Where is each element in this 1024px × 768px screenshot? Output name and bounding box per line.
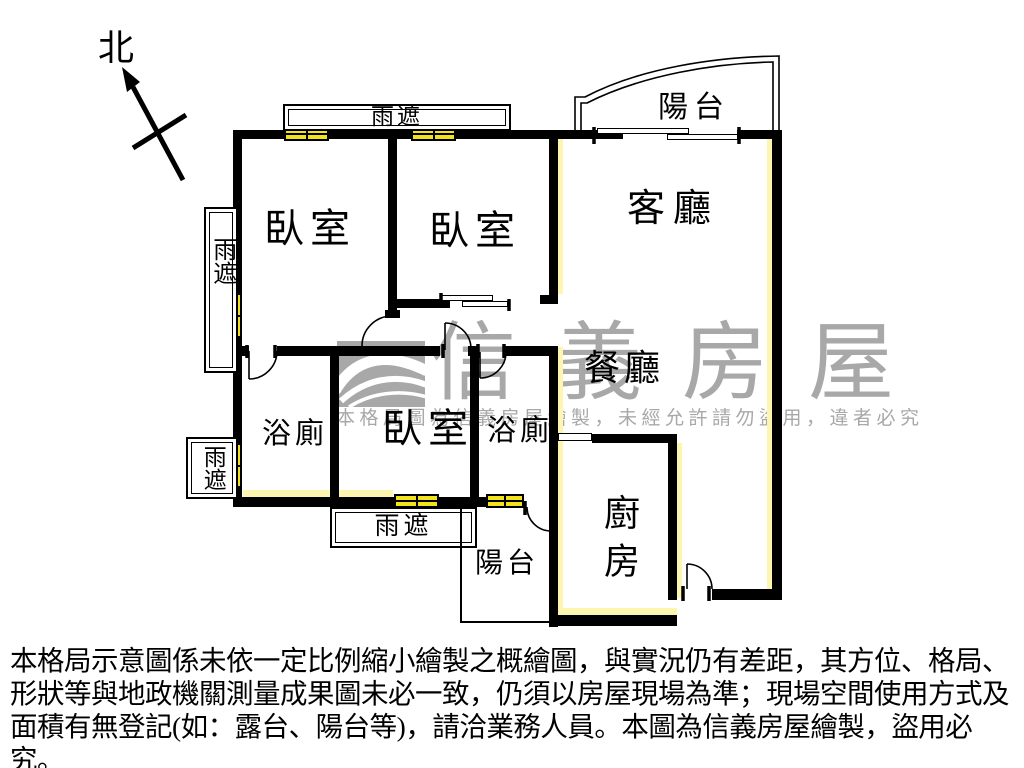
wall-segment — [385, 310, 400, 318]
room-label-living: 客廳 — [601, 188, 745, 232]
highlight-strip — [243, 490, 393, 497]
canopy-box-top: 雨遮 — [283, 104, 511, 131]
room-label-bathroom1: 浴廁 — [240, 418, 350, 451]
wall-segment — [668, 434, 677, 600]
disclaimer-text: 本格局示意圖係未依一定比例縮小繪製之概繪圖，與實況仍有差距，其方位、格局、 形狀… — [10, 644, 1016, 768]
wall-segment — [772, 130, 782, 600]
canopy-label: 雨遮 — [374, 513, 432, 542]
sliding-door-symbol — [462, 301, 508, 307]
canopy-box-left-upper: 雨遮 — [204, 207, 238, 373]
wall-segment — [277, 346, 440, 356]
wall-segment — [712, 589, 782, 600]
floor-plan: 信義房屋 本格局圖為信義房屋繪製，未經允許請勿盜用，違者必究 雨遮 雨遮 — [0, 0, 1024, 768]
wall-segment — [549, 130, 558, 299]
disclaimer-line1: 本格局示意圖係未依一定比例縮小繪製之概繪圖，與實況仍有差距，其方位、格局、 — [10, 644, 1016, 677]
canopy-label: 雨遮 — [199, 445, 225, 491]
north-arrow — [122, 67, 186, 180]
room-label-dining: 餐廳 — [552, 348, 696, 389]
disclaimer-line2: 形狀等與地政機關測量成果圖未必一致，仍須以房屋現場為準；現場空間使用方式及 — [10, 677, 1016, 710]
wall-segment — [592, 434, 677, 443]
window-symbol — [394, 494, 439, 508]
door-living-rear — [687, 564, 712, 589]
disclaimer-line3: 面積有無登記(如：露台、陽台等)，請洽業務人員。本圖為信義房屋繪製，盜用必究。 — [10, 710, 1016, 768]
room-label-bedroom1: 臥室 — [240, 206, 380, 252]
canopy-label: 雨遮 — [371, 104, 423, 130]
room-label-balcony-top: 陽台 — [644, 91, 744, 126]
window-symbol — [486, 494, 524, 508]
wall-segment — [388, 130, 397, 315]
room-label-kitchen: 廚房 — [597, 487, 639, 597]
room-label-bedroom2: 臥室 — [405, 208, 545, 254]
highlight-strip — [677, 443, 682, 598]
canopy-box-left-lower: 雨遮 — [186, 437, 238, 499]
wall-segment — [233, 497, 523, 507]
canopy-label: 雨遮 — [207, 237, 235, 285]
door-bathroom1 — [249, 351, 277, 379]
highlight-strip — [558, 608, 677, 615]
highlight-strip — [558, 139, 563, 294]
room-label-balcony-bottom: 陽台 — [457, 548, 557, 580]
north-label: 北 — [98, 28, 134, 69]
room-label-bathroom2: 浴廁 — [465, 415, 575, 448]
sliding-door-symbol — [667, 134, 738, 140]
wall-segment — [549, 615, 677, 626]
canopy-box-bottom: 雨遮 — [330, 507, 477, 548]
